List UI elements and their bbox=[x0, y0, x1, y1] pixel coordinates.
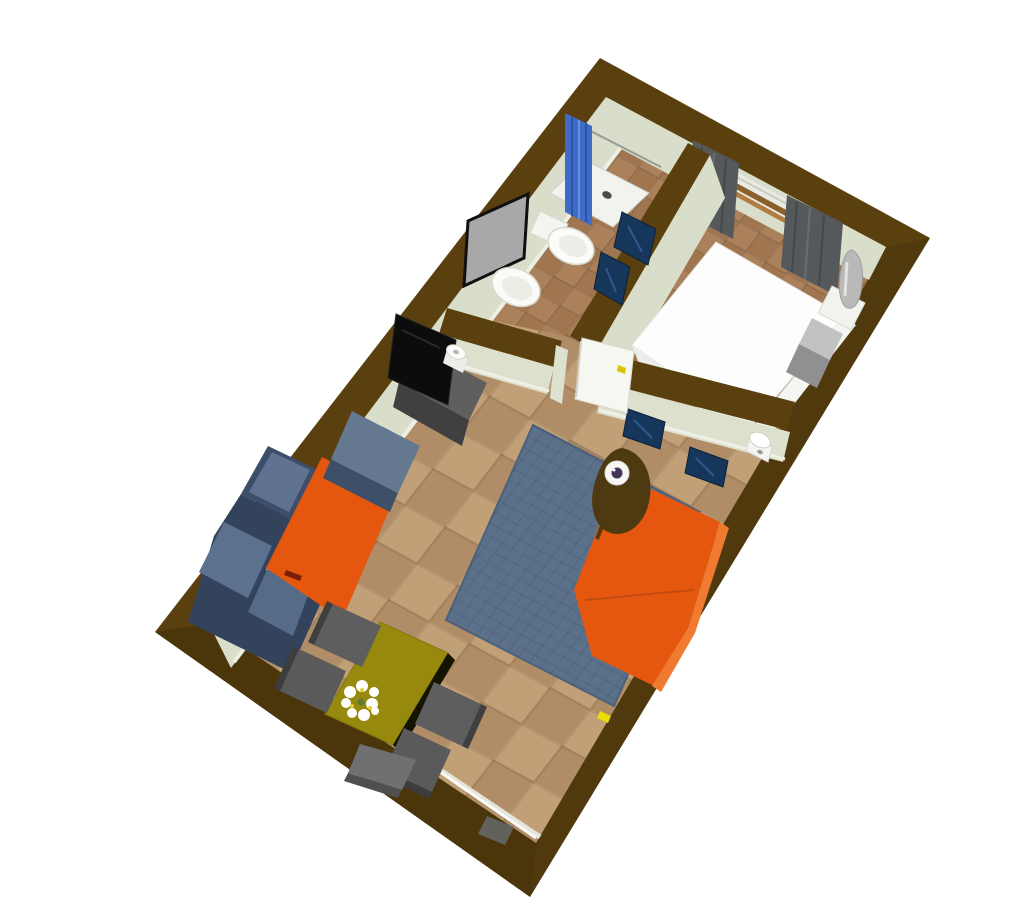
flower-petal-8 bbox=[371, 707, 379, 715]
floor-plan-3d-view[interactable] bbox=[0, 0, 1018, 904]
flower-center-2 bbox=[350, 704, 354, 708]
flower-greenery bbox=[358, 699, 365, 706]
flower-petal-1 bbox=[344, 686, 356, 698]
flower-petal-3 bbox=[369, 687, 379, 697]
flower-petal-7 bbox=[358, 709, 370, 721]
bedroom-door[interactable] bbox=[575, 338, 634, 413]
flower-petal-4 bbox=[341, 698, 351, 708]
render-canvas bbox=[0, 0, 1018, 904]
flower-petal-6 bbox=[347, 708, 357, 718]
flower-center-1 bbox=[360, 688, 364, 692]
egg-chair-sparkle bbox=[613, 469, 616, 472]
table-lamp-silver-highlight bbox=[845, 262, 847, 296]
flower-center-3 bbox=[368, 706, 372, 710]
